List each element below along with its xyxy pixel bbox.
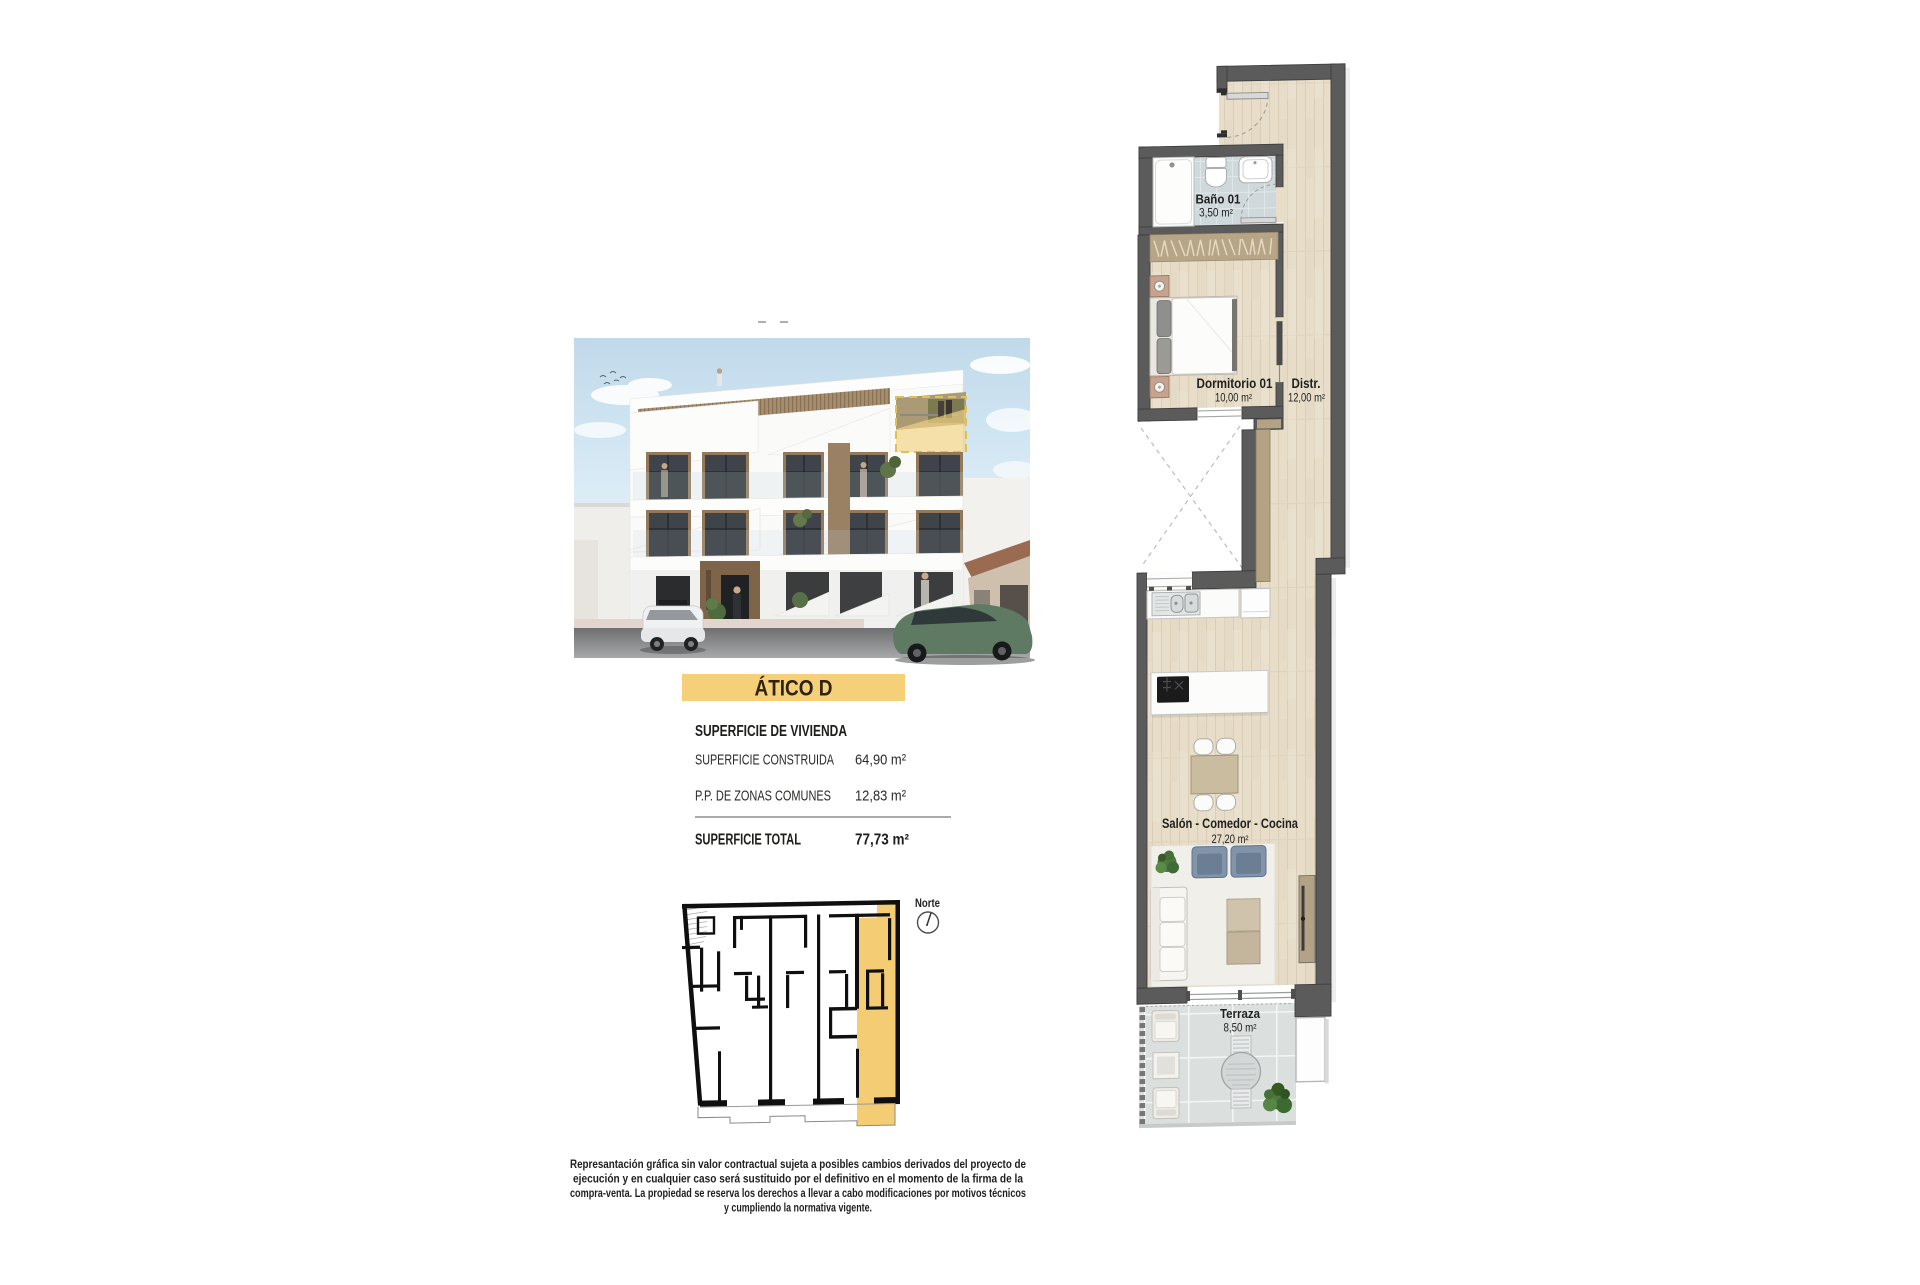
svg-text:12,83 m²: 12,83 m² — [855, 788, 906, 805]
svg-text:ÁTICO D: ÁTICO D — [755, 676, 833, 701]
svg-text:y cumpliendo la normativa vige: y cumpliendo la normativa vigente. — [724, 1201, 872, 1215]
svg-text:8,50 m²: 8,50 m² — [1224, 1023, 1257, 1035]
svg-text:SUPERFICIE TOTAL: SUPERFICIE TOTAL — [695, 832, 801, 849]
svg-text:compra-venta. La propiedad se: compra-venta. La propiedad se reserva lo… — [570, 1186, 1026, 1200]
svg-text:Baño 01: Baño 01 — [1196, 192, 1241, 207]
svg-text:Norte: Norte — [915, 896, 940, 910]
svg-text:P.P. DE ZONAS COMUNES: P.P. DE ZONAS COMUNES — [695, 788, 831, 805]
svg-text:10,00 m²: 10,00 m² — [1215, 393, 1252, 405]
svg-text:Distr.: Distr. — [1292, 375, 1321, 391]
svg-text:64,90 m²: 64,90 m² — [855, 752, 906, 769]
svg-text:SUPERFICIE DE VIVIENDA: SUPERFICIE DE VIVIENDA — [695, 723, 847, 740]
svg-text:3,50 m²: 3,50 m² — [1199, 208, 1233, 220]
svg-text:ejecución y en cualquier caso: ejecución y en cualquier caso será susti… — [573, 1172, 1023, 1186]
svg-text:SUPERFICIE CONSTRUIDA: SUPERFICIE CONSTRUIDA — [695, 752, 834, 769]
svg-text:Terraza: Terraza — [1220, 1006, 1261, 1021]
svg-text:77,73 m²: 77,73 m² — [855, 832, 909, 849]
svg-text:Dormitorio 01: Dormitorio 01 — [1197, 375, 1273, 391]
svg-text:Salón - Comedor - Cocina: Salón - Comedor - Cocina — [1162, 815, 1298, 831]
svg-text:27,20 m²: 27,20 m² — [1212, 834, 1249, 846]
svg-text:Represantación gráfica sin val: Represantación gráfica sin valor contrac… — [570, 1157, 1026, 1171]
svg-text:12,00 m²: 12,00 m² — [1288, 393, 1325, 405]
